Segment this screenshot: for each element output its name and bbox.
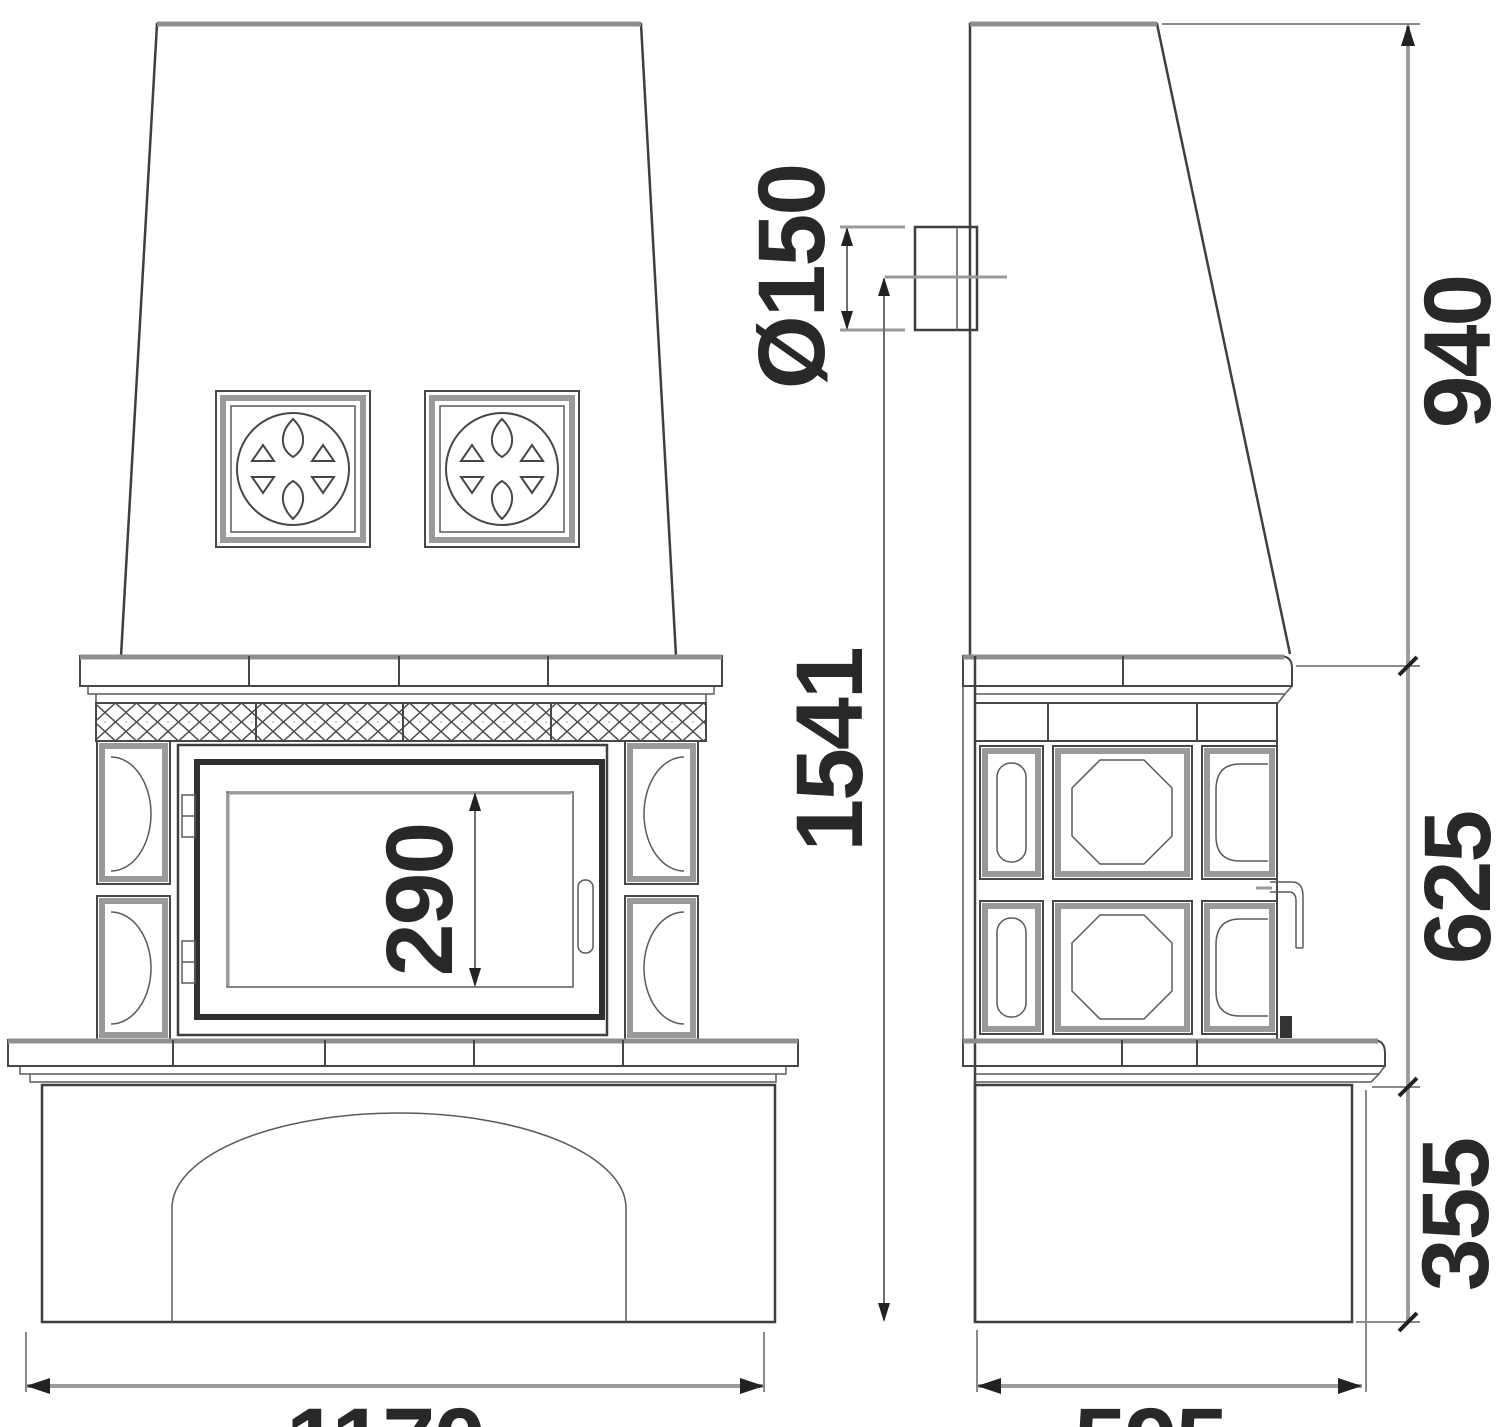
side-tile-clipped-bottom xyxy=(1202,901,1277,1034)
front-chimney-hood xyxy=(121,24,676,656)
dim-label-1170: 1170 xyxy=(286,1389,484,1427)
side-frieze xyxy=(975,703,1277,741)
side-tile-grid xyxy=(975,656,1277,1322)
dim-side-depth: 595 xyxy=(977,1090,1366,1427)
dim-front-width: 1170 xyxy=(26,1332,764,1427)
base-arch xyxy=(172,1113,626,1322)
side-view: Ø150 1541 xyxy=(739,24,1500,1427)
side-chimney xyxy=(963,24,1290,1040)
front-view: 290 1170 xyxy=(8,24,798,1427)
dim-flue-diameter: Ø150 xyxy=(739,165,905,389)
door-hinge-top xyxy=(182,795,195,837)
dim-label-flue: Ø150 xyxy=(739,165,845,389)
front-mantel-shelf xyxy=(80,656,722,703)
door-handle-side xyxy=(1256,882,1303,948)
front-right-tile-column xyxy=(625,741,698,1040)
front-pedestal-slab xyxy=(8,1040,798,1082)
side-pedestal-slab xyxy=(963,1040,1385,1082)
side-tile-pill-bottom xyxy=(980,901,1043,1034)
dim-right-column: 940 625 355 xyxy=(1162,24,1500,1331)
firebox-door: 290 xyxy=(178,745,607,1035)
side-tile-clipped-top xyxy=(1202,746,1277,879)
dim-total-height: 1541 xyxy=(777,277,890,1322)
side-base xyxy=(975,1085,1352,1322)
side-tile-octagon-top xyxy=(1053,746,1192,879)
dim-label-1541: 1541 xyxy=(777,648,883,852)
door-latch-foot xyxy=(1280,1016,1292,1038)
front-base xyxy=(42,1085,775,1322)
crosshatch-frieze xyxy=(96,703,706,741)
rosette-tile-right xyxy=(425,391,579,547)
rosette-tile-left xyxy=(216,391,370,547)
dim-label-940: 940 xyxy=(1405,276,1500,429)
dim-label-625: 625 xyxy=(1405,812,1500,965)
side-tile-octagon-bottom xyxy=(1053,901,1192,1034)
door-handle-front xyxy=(578,880,593,953)
dim-label-290: 290 xyxy=(367,824,473,977)
dim-label-595: 595 xyxy=(1074,1389,1227,1427)
side-tile-pill-top xyxy=(980,746,1043,879)
dim-label-355: 355 xyxy=(1403,1139,1500,1292)
front-left-tile-column xyxy=(97,741,170,1040)
side-mantel-shelf xyxy=(963,656,1292,703)
technical-drawing-page: 290 1170 xyxy=(0,0,1500,1427)
dim-door-glass-height: 290 xyxy=(367,792,481,987)
stove-dimension-drawing: 290 1170 xyxy=(0,0,1500,1427)
door-hinge-bottom xyxy=(182,941,195,983)
flue-outlet xyxy=(885,227,1007,330)
